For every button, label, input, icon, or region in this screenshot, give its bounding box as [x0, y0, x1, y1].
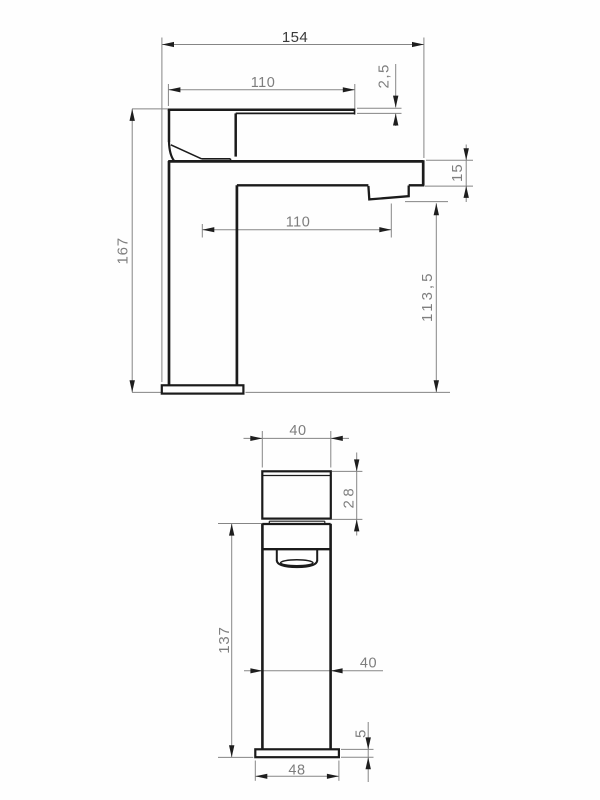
svg-text:40: 40 — [289, 423, 306, 439]
svg-text:154: 154 — [282, 29, 308, 46]
svg-text:48: 48 — [288, 763, 305, 779]
svg-text:5: 5 — [353, 730, 370, 738]
svg-text:113,5: 113,5 — [419, 271, 436, 322]
svg-text:2,5: 2,5 — [376, 63, 393, 88]
svg-text:167: 167 — [115, 237, 132, 264]
svg-text:110: 110 — [286, 215, 311, 231]
svg-text:28: 28 — [341, 485, 358, 509]
svg-text:40: 40 — [360, 656, 377, 672]
svg-text:110: 110 — [251, 75, 276, 91]
svg-text:15: 15 — [449, 163, 466, 182]
svg-text:137: 137 — [216, 626, 233, 653]
